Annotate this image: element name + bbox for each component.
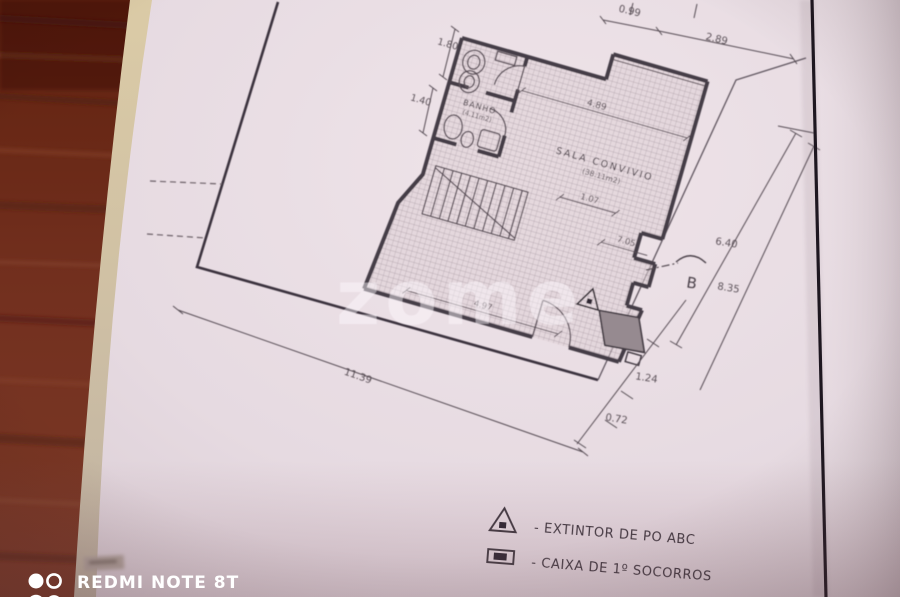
camera-watermark-line1: REDMI NOTE 8T: [77, 573, 239, 593]
camera-dot-filled-icon: [29, 574, 44, 589]
vignette: [0, 0, 900, 597]
photo-of-floor-plan: SALA CONVIVIO (38.11m2) BANHO (4.11m2) 4…: [0, 0, 900, 597]
floor-plan-photo: SALA CONVIVIO (38.11m2) BANHO (4.11m2) 4…: [0, 0, 900, 597]
